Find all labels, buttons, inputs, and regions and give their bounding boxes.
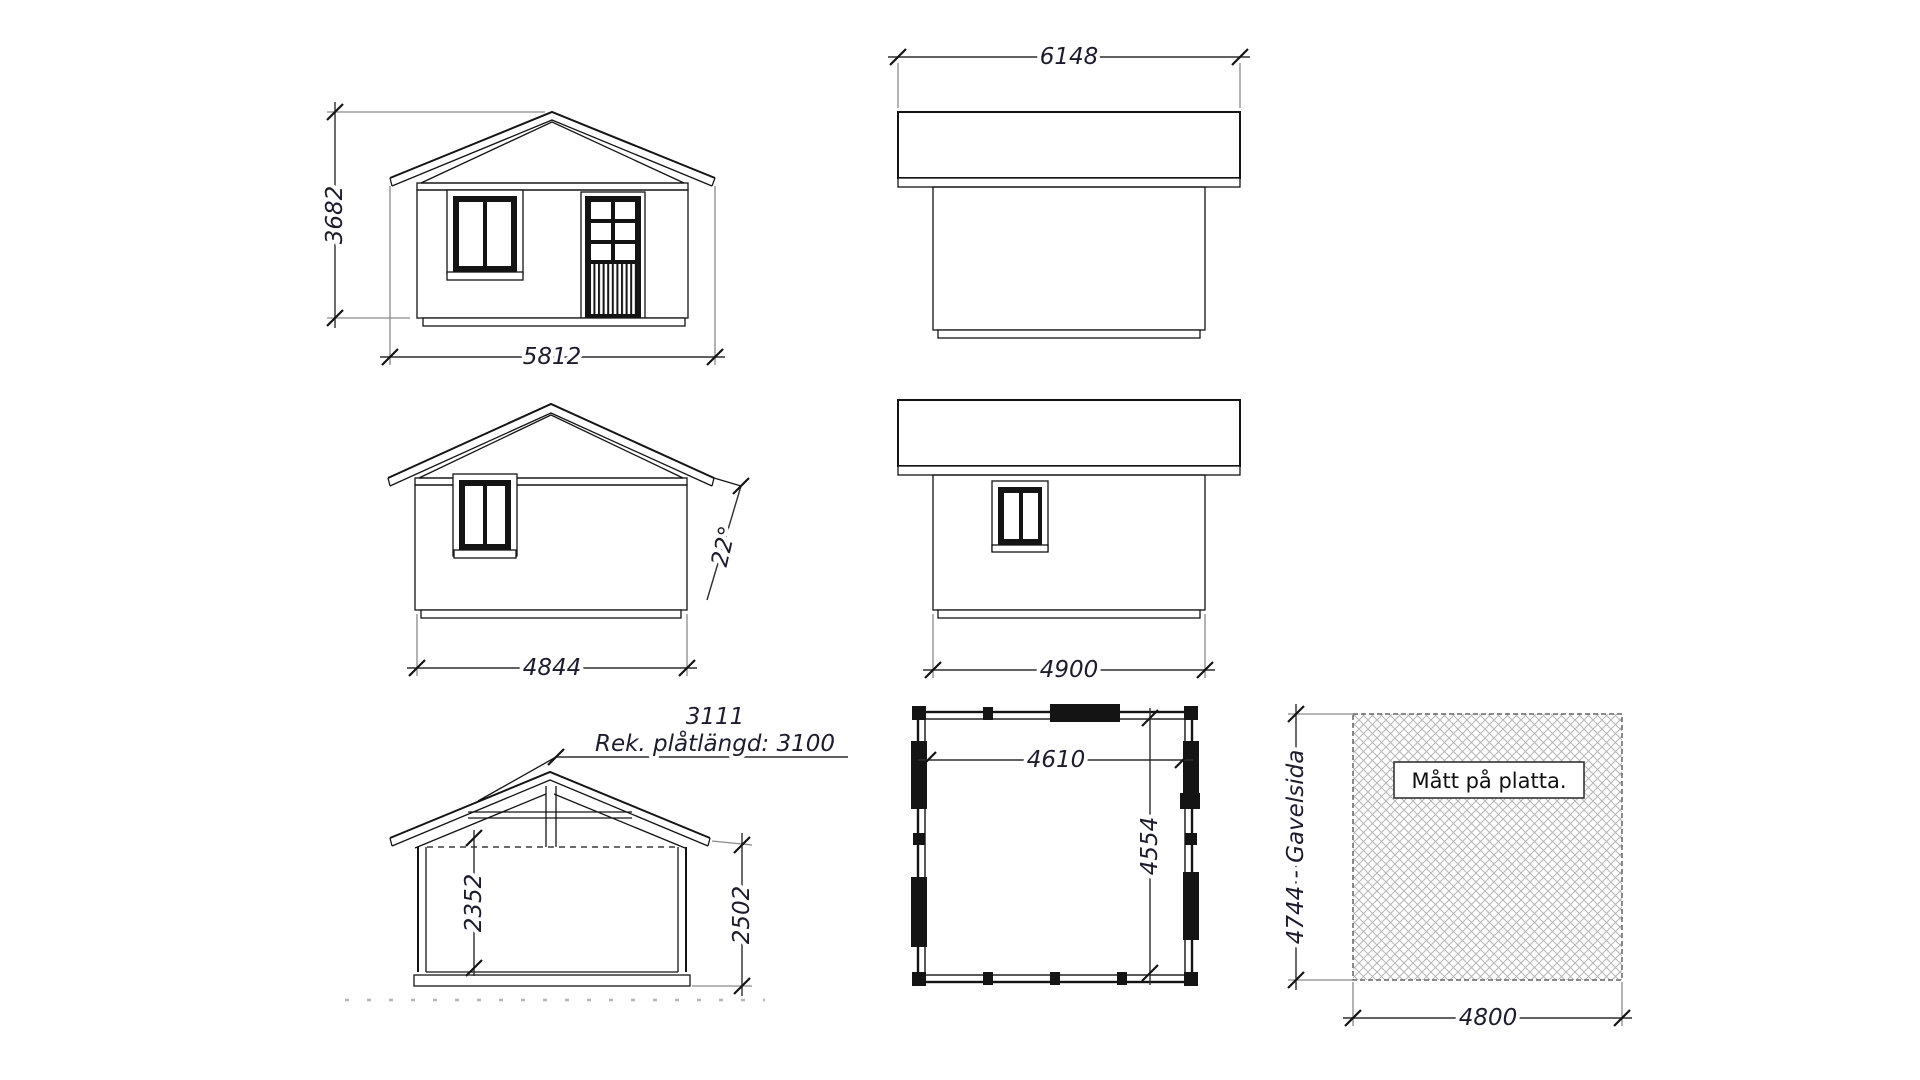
plan-left-window (911, 741, 927, 809)
plan-width-label: 4610 (1027, 747, 1086, 773)
drawing-sheet: 3682 5812 6148 (0, 0, 1920, 1080)
side-window (992, 481, 1048, 552)
door-planks (591, 264, 635, 314)
roof-length-dimension-label: 6148 (1040, 44, 1099, 70)
base-plate (414, 975, 690, 986)
cabin-dimension-drawing: 3682 5812 6148 (0, 0, 1920, 1080)
slab-hatch (1353, 714, 1622, 980)
slab-width-label: 4800 (1459, 1005, 1518, 1031)
slab-side-label: 4744 - Gavelsida (1283, 750, 1309, 945)
front-width-dimension-label: 5812 (523, 344, 582, 370)
front-window (447, 190, 523, 280)
rear-width-dimension-label: 4844 (523, 655, 582, 681)
inner-height-label: 2352 (461, 874, 487, 933)
floor-plan-view: 4610 4554 (911, 704, 1200, 986)
fascia-strip (898, 466, 1240, 475)
foundation-strip (421, 610, 681, 618)
wall-height-label: 2502 (729, 886, 755, 945)
window-sill (454, 550, 516, 558)
foundation-strip (938, 330, 1200, 338)
window-sill (447, 272, 523, 280)
plan-door-opening (1050, 704, 1120, 722)
foundation-strip (423, 318, 685, 326)
roof-slope-length-label: 3111 (686, 704, 745, 730)
front-door (581, 192, 645, 318)
fascia-strip (898, 178, 1240, 187)
side-length-dimension-label: 4900 (1040, 657, 1099, 683)
rear-window (453, 474, 517, 558)
height-dimension-label: 3682 (322, 186, 348, 245)
window-sill (992, 545, 1048, 552)
slab-label: Mått på platta. (1411, 768, 1566, 793)
sheet-length-note-label: Rek. plåtlängd: 3100 (595, 729, 835, 757)
foundation-strip (938, 610, 1200, 618)
plan-depth-label: 4554 (1137, 817, 1163, 876)
